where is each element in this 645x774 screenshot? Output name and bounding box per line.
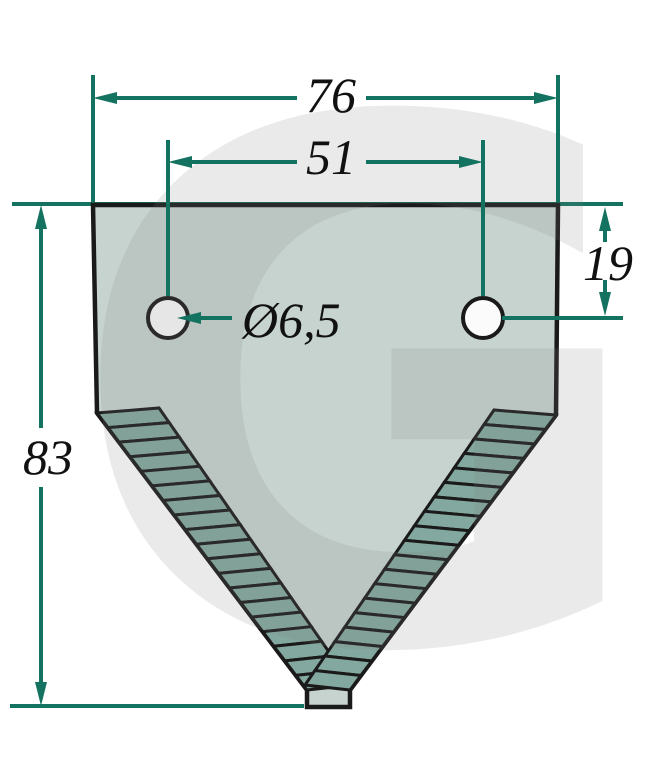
technical-drawing: G 76 51 83 <box>0 0 645 774</box>
hole-diameter-label: Ø6,5 <box>241 292 341 348</box>
hole-spacing-dimension-label: 51 <box>306 129 356 185</box>
arrow-down-icon <box>35 682 47 706</box>
height-dimension-label: 83 <box>23 429 73 485</box>
arrow-up-icon <box>35 205 47 229</box>
drawing-canvas: G 76 51 83 <box>0 0 645 774</box>
hole-offset-dimension-label: 19 <box>583 235 633 291</box>
width-dimension-label: 76 <box>306 67 356 123</box>
